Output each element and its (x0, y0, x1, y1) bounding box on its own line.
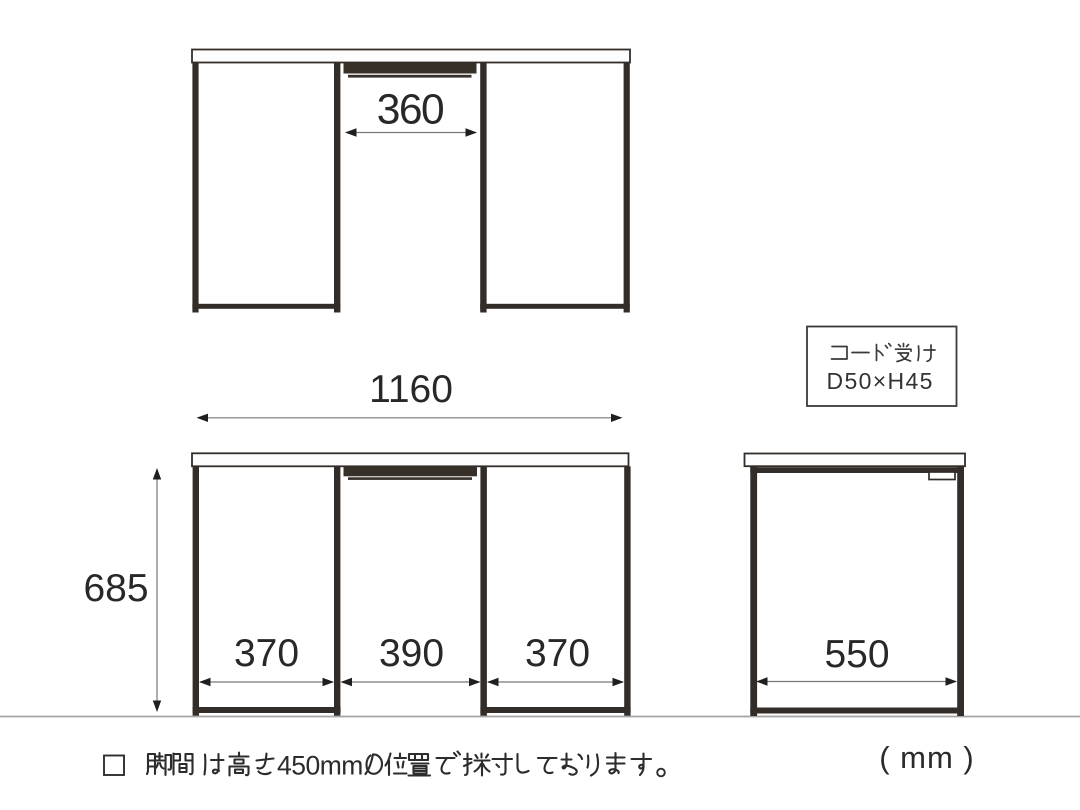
svg-text:685: 685 (83, 567, 148, 610)
svg-text:390: 390 (379, 632, 444, 675)
svg-text:( mm ): ( mm ) (879, 740, 975, 775)
svg-text:1160: 1160 (369, 368, 453, 411)
svg-text:D50×H45: D50×H45 (827, 368, 934, 394)
svg-text:550: 550 (824, 633, 889, 676)
svg-text:450mm: 450mm (277, 751, 363, 781)
svg-text:360: 360 (377, 87, 443, 134)
svg-text:370: 370 (234, 632, 299, 675)
svg-text:370: 370 (525, 632, 590, 675)
